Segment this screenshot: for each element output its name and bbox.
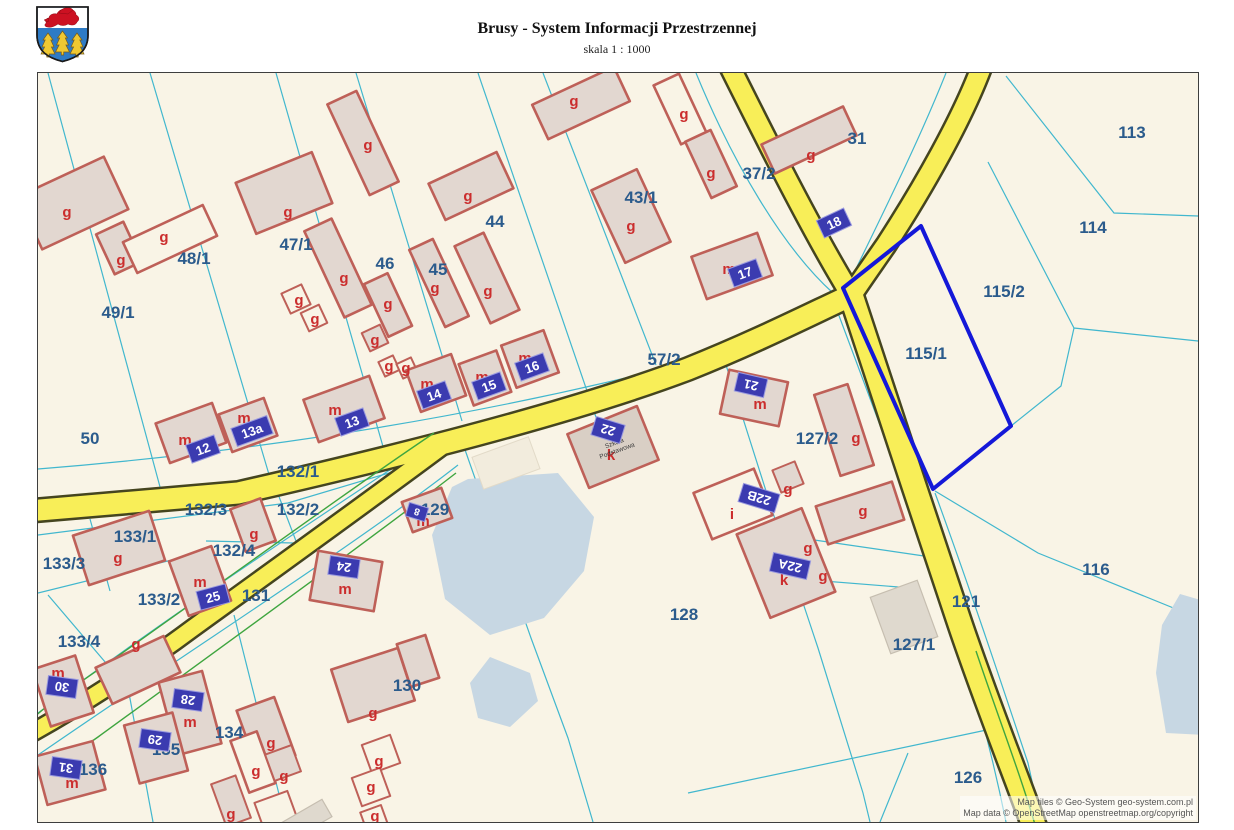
building-letter: g <box>366 779 375 796</box>
building-letter: g <box>131 636 140 653</box>
address-plate-28[interactable]: 28 <box>172 689 204 712</box>
building-letter: i <box>730 506 734 523</box>
map[interactable]: g g g g g g g g g g g g g g g g g g g g <box>37 72 1199 823</box>
building-letter: g <box>803 540 812 557</box>
parcel-label[interactable]: 133/1 <box>114 527 157 546</box>
parcel-label[interactable]: 114 <box>1079 218 1107 237</box>
parcel-label[interactable]: 133/4 <box>58 632 101 651</box>
parcel-label[interactable]: 134 <box>215 723 244 742</box>
building-letter: m <box>193 574 206 591</box>
parcel-label[interactable]: 121 <box>952 592 980 611</box>
parcel-label[interactable]: 31 <box>848 129 867 148</box>
building-letter: g <box>251 763 260 780</box>
pond <box>432 473 594 635</box>
building-letter: g <box>430 280 439 297</box>
parcel-label[interactable]: 130 <box>393 676 421 695</box>
parcel-label[interactable]: 116 <box>1082 560 1109 579</box>
building-letter: g <box>818 568 827 585</box>
parcel-label[interactable]: 44 <box>486 212 505 231</box>
svg-text:31: 31 <box>58 760 74 777</box>
parcel-label[interactable]: 43/1 <box>624 188 657 207</box>
parcel-label[interactable]: 131 <box>242 586 270 605</box>
parcel-label[interactable]: 45 <box>429 260 448 279</box>
building-letter: g <box>283 204 292 221</box>
building-letter: g <box>851 430 860 447</box>
parcel-label[interactable]: 113 <box>1118 123 1145 142</box>
svg-text:24: 24 <box>335 558 352 575</box>
parcel-label[interactable]: 132/3 <box>185 500 228 519</box>
parcel-label[interactable]: 133/3 <box>43 554 86 573</box>
building-letter: g <box>368 705 377 722</box>
building <box>591 169 670 263</box>
building-letter: g <box>626 218 635 235</box>
parcel-label[interactable]: 115/1 <box>905 344 947 363</box>
attribution-line-2: Map data © OpenStreetMap openstreetmap.o… <box>963 808 1193 819</box>
page-title: Brusy - System Informacji Przestrzennej <box>0 20 1234 38</box>
parcel-label[interactable]: 136 <box>79 760 107 779</box>
building-letter: g <box>370 808 379 822</box>
svg-text:28: 28 <box>180 692 196 709</box>
parcel-label[interactable]: 48/1 <box>177 249 210 268</box>
building-letter: m <box>753 396 766 413</box>
building-letter: g <box>401 360 410 377</box>
building-letter: g <box>384 358 393 375</box>
address-plate-31[interactable]: 31 <box>50 757 82 780</box>
parcel-label[interactable]: 132/2 <box>277 500 320 519</box>
building-letter: g <box>706 165 715 182</box>
pond <box>470 657 538 727</box>
parcel-label[interactable]: 37/2 <box>742 164 775 183</box>
parcel-label[interactable]: 127/2 <box>796 429 839 448</box>
building-letter: g <box>116 252 125 269</box>
building <box>429 152 514 220</box>
building-letter: g <box>569 93 578 110</box>
map-attribution: Map tiles © Geo-System geo-system.com.pl… <box>960 796 1196 820</box>
building-letter: g <box>62 204 71 221</box>
building-letter: g <box>679 106 688 123</box>
address-plate-30[interactable]: 30 <box>46 676 78 699</box>
building-letter: g <box>374 753 383 770</box>
address-plate-24[interactable]: 24 <box>328 556 360 579</box>
parcel-label[interactable]: 46 <box>376 254 395 273</box>
building-letter: g <box>370 332 379 349</box>
building <box>304 219 371 318</box>
building-letter: m <box>183 714 196 731</box>
building-letter: g <box>279 768 288 785</box>
building-letter: g <box>159 229 168 246</box>
building-letter: g <box>294 292 303 309</box>
pond <box>1156 594 1198 735</box>
building-letter: g <box>339 270 348 287</box>
page: Brusy - System Informacji Przestrzennej … <box>0 0 1234 830</box>
address-plate-29[interactable]: 29 <box>139 729 171 752</box>
building-letter: g <box>113 550 122 567</box>
parcel-label[interactable]: 128 <box>670 605 698 624</box>
building-letter: g <box>383 296 392 313</box>
building-letter: g <box>483 283 492 300</box>
svg-text:29: 29 <box>147 732 163 749</box>
parcel-label[interactable]: 50 <box>81 429 100 448</box>
building <box>685 130 737 198</box>
building-letter: g <box>226 806 235 822</box>
building-letter: g <box>783 481 792 498</box>
building-letter: g <box>363 137 372 154</box>
map-canvas[interactable]: g g g g g g g g g g g g g g g g g g g g <box>38 73 1198 822</box>
attribution-line-1: Map tiles © Geo-System geo-system.com.pl <box>963 797 1193 808</box>
building <box>73 511 165 585</box>
map-scale-label: skala 1 : 1000 <box>0 42 1234 57</box>
building-letter: g <box>463 188 472 205</box>
parcel-label[interactable]: 127/1 <box>893 635 936 654</box>
building-letter: g <box>266 735 275 752</box>
parcel-label[interactable]: 133/2 <box>138 590 181 609</box>
parcel-label[interactable]: 115/2 <box>983 282 1025 301</box>
building <box>236 152 333 234</box>
parcel-label[interactable]: 57/2 <box>647 350 680 369</box>
ponds-layer <box>432 473 1198 735</box>
parcel-label[interactable]: 132/4 <box>213 541 256 560</box>
svg-text:30: 30 <box>54 679 70 696</box>
parcel-label[interactable]: 126 <box>954 768 982 787</box>
building-letter: m <box>338 581 351 598</box>
parcel-label[interactable]: 47/1 <box>279 235 312 254</box>
building-letter: g <box>310 311 319 328</box>
parcel-label[interactable]: 49/1 <box>101 303 134 322</box>
building-letter: g <box>806 147 815 164</box>
parcel-label[interactable]: 132/1 <box>277 462 320 481</box>
building-letter: g <box>858 503 867 520</box>
